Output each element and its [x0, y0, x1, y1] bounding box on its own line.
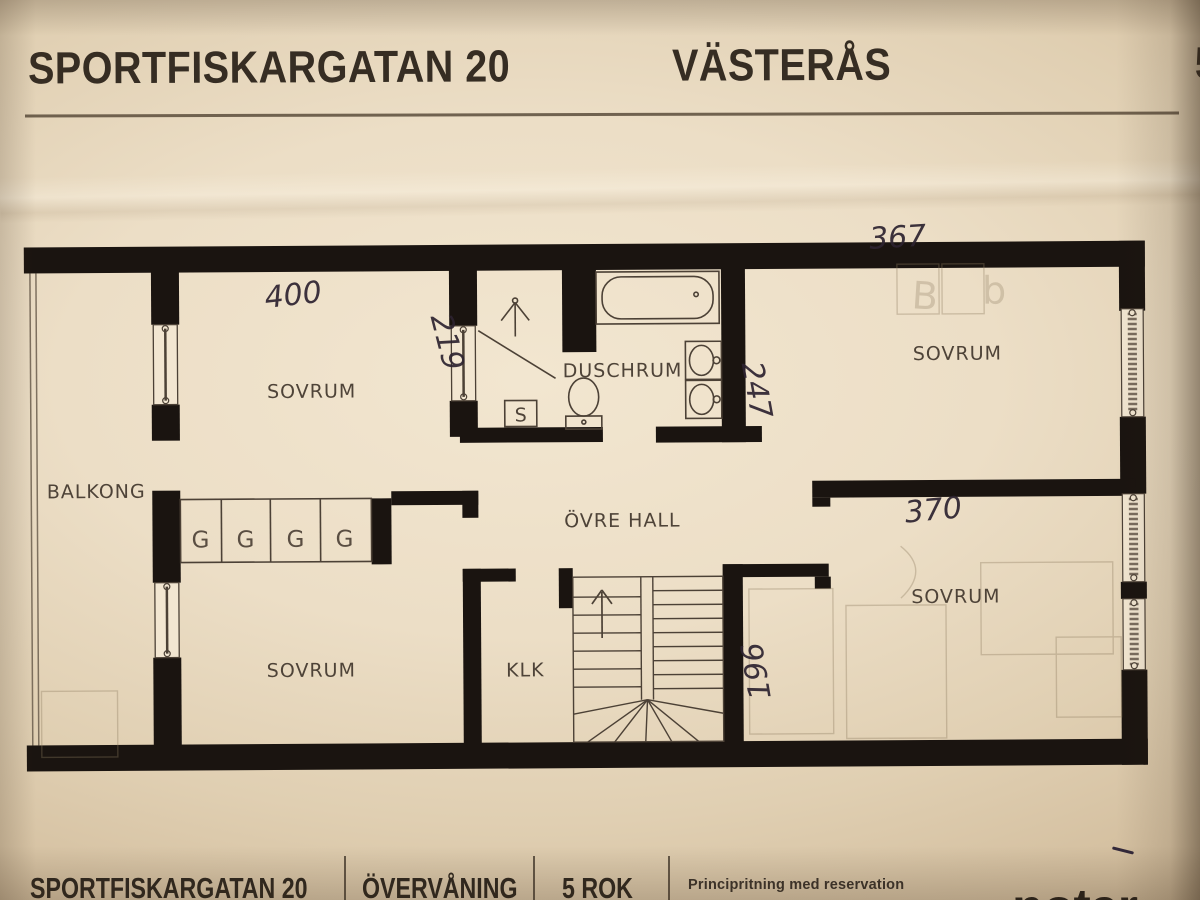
footer-address: SPORTFISKARGATAN 20 [30, 873, 377, 900]
footer-room-count: 5 ROK [562, 873, 651, 900]
footer-separator-2 [533, 856, 535, 900]
footer-floor: ÖVERVÅNING [362, 873, 556, 900]
footer: SPORTFISKARGATAN 20 ÖVERVÅNING 5 ROK Pri… [0, 0, 1200, 900]
footer-separator-3 [668, 856, 670, 900]
floorplan-photo: SPORTFISKARGATAN 20 VÄSTERÅS 5 ROK [0, 0, 1200, 900]
footer-separator-1 [344, 856, 346, 900]
notar-logo: notar [1012, 878, 1137, 900]
footer-disclaimer: Principritning med reservation [688, 877, 904, 893]
